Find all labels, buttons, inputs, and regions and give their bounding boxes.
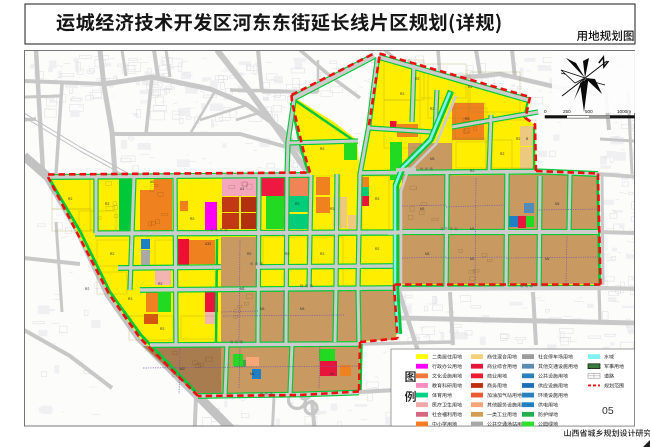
svg-text:250: 250 [563, 109, 571, 114]
svg-text:A5: A5 [150, 180, 154, 184]
svg-text:M1: M1 [330, 372, 335, 376]
svg-text:M1: M1 [430, 157, 435, 161]
svg-text:R2: R2 [400, 92, 404, 96]
svg-text:R2: R2 [68, 197, 72, 201]
svg-text:R2: R2 [375, 197, 379, 201]
svg-text:500: 500 [585, 109, 593, 114]
svg-text:R2: R2 [320, 252, 324, 256]
svg-text:R2: R2 [105, 202, 109, 206]
svg-text:R2: R2 [516, 137, 520, 141]
svg-text:A3: A3 [240, 187, 244, 191]
svg-text:R2: R2 [295, 202, 299, 206]
svg-text:M1: M1 [545, 257, 550, 261]
svg-text:M1: M1 [420, 207, 425, 211]
svg-text:M1: M1 [260, 307, 265, 311]
svg-text:M1: M1 [240, 287, 245, 291]
svg-text:M1: M1 [470, 227, 475, 231]
svg-text:R2: R2 [85, 287, 89, 291]
svg-text:M1: M1 [300, 307, 305, 311]
svg-text:M1: M1 [470, 257, 475, 261]
svg-text:1000m: 1000m [617, 109, 631, 114]
svg-text:M1: M1 [555, 202, 560, 206]
svg-text:R2: R2 [320, 147, 324, 151]
svg-text:R2: R2 [330, 207, 334, 211]
svg-text:M1: M1 [425, 252, 430, 256]
svg-text:R2: R2 [190, 217, 194, 221]
svg-text:05: 05 [602, 405, 614, 417]
svg-text:R2: R2 [500, 152, 504, 156]
svg-text:R2: R2 [158, 282, 162, 286]
svg-text:M1: M1 [250, 372, 255, 376]
svg-text:R2: R2 [285, 252, 289, 256]
svg-text:R2: R2 [430, 107, 434, 111]
svg-text:M2: M2 [180, 367, 185, 371]
svg-text:R2: R2 [468, 85, 472, 89]
svg-text:R2: R2 [375, 247, 379, 251]
svg-text:R2: R2 [128, 297, 132, 301]
svg-text:A33: A33 [205, 242, 211, 246]
svg-text:0: 0 [544, 109, 547, 114]
svg-text:R2: R2 [470, 169, 474, 173]
svg-text:R2: R2 [465, 117, 469, 121]
svg-text:R2: R2 [415, 77, 419, 81]
svg-text:R2: R2 [110, 252, 114, 256]
svg-text:R2: R2 [247, 252, 251, 256]
svg-text:R2: R2 [160, 327, 164, 331]
